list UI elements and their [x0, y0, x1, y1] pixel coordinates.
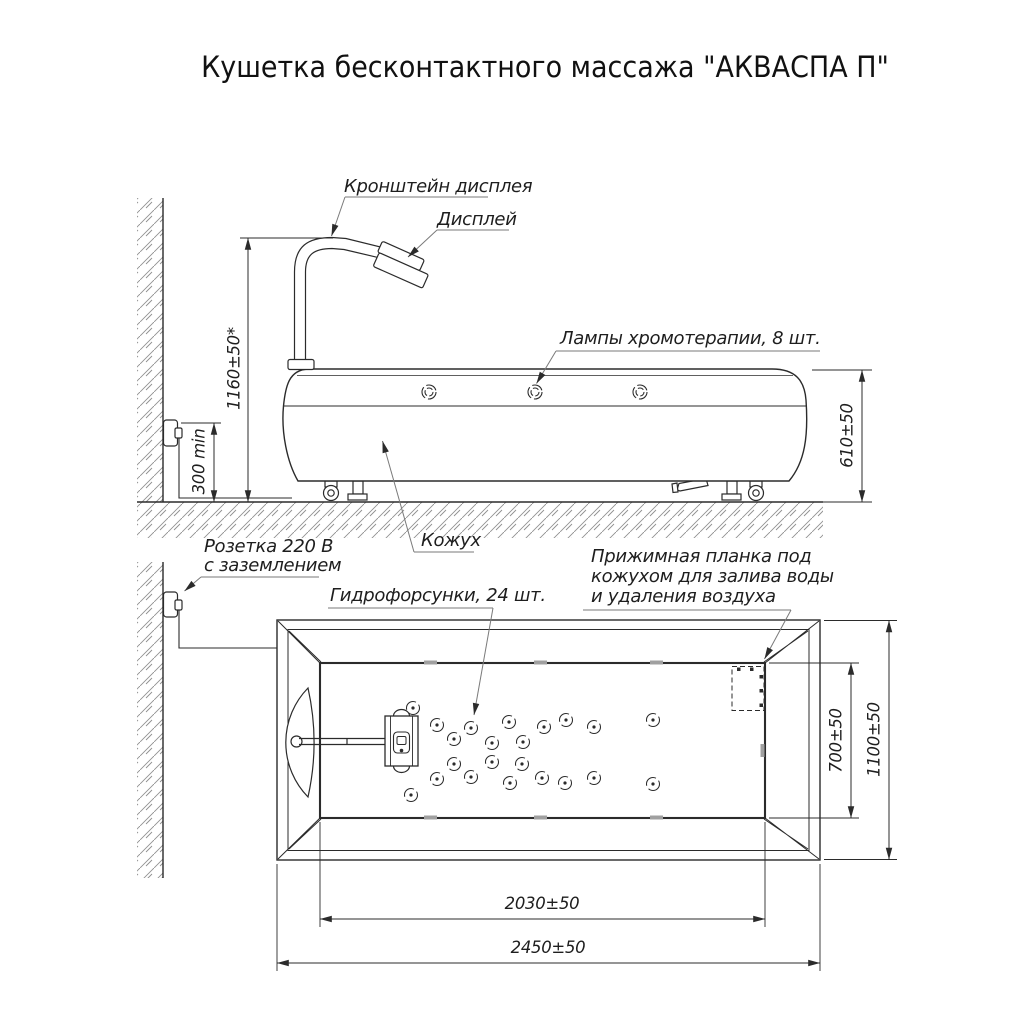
label-display-bracket: Кронштейн дисплея [344, 177, 532, 197]
label-socket: Розетка 220 В с заземлением [204, 537, 341, 575]
leveling-foot-right [722, 481, 741, 500]
wall-plan [137, 562, 163, 878]
dim-text-basin-length: 2030±50 [442, 894, 642, 913]
label-clamp-line1: Прижимная планка под [591, 547, 834, 567]
drawing-linework [0, 0, 1024, 1024]
label-socket-line1: Розетка 220 В [204, 537, 341, 556]
caster-wheel-left [324, 481, 339, 501]
label-nozzles: Гидрофорсунки, 24 шт. [330, 586, 546, 606]
dim-text-display-height: 1160±50* [225, 309, 244, 429]
display-head [373, 241, 428, 288]
wall-socket-side [164, 420, 293, 498]
technical-drawing-canvas: Кушетка бесконтактного массажа "АКВАСПА … [0, 0, 1024, 1024]
drawing-title: Кушетка бесконтактного массажа "АКВАСПА … [201, 50, 889, 84]
label-casing: Кожух [421, 531, 481, 551]
couch-body [283, 369, 807, 481]
dim-text-overall-length: 2450±50 [448, 938, 648, 957]
dim-text-socket-height: 300 min [190, 402, 209, 522]
wall-side [137, 198, 163, 502]
label-socket-line2: с заземлением [204, 556, 341, 575]
dim-text-couch-height: 610±50 [838, 376, 857, 496]
label-lamps: Лампы хромотерапии, 8 шт. [560, 329, 821, 349]
wall-socket-plan [164, 592, 278, 648]
dim-text-overall-width: 1100±50 [865, 680, 884, 800]
label-display: Дисплей [437, 210, 517, 230]
label-clamp-line2: кожухом для залива воды [591, 567, 834, 587]
label-clamping-bar: Прижимная планка под кожухом для залива … [591, 547, 834, 607]
caster-wheel-right [749, 481, 764, 501]
dim-text-basin-width: 700±50 [827, 681, 846, 801]
tub-frame [277, 620, 820, 860]
bracket-box [385, 710, 418, 773]
side-view [137, 197, 872, 552]
label-clamp-line3: и удаления воздуха [591, 587, 834, 607]
leveling-foot-left [348, 481, 367, 500]
